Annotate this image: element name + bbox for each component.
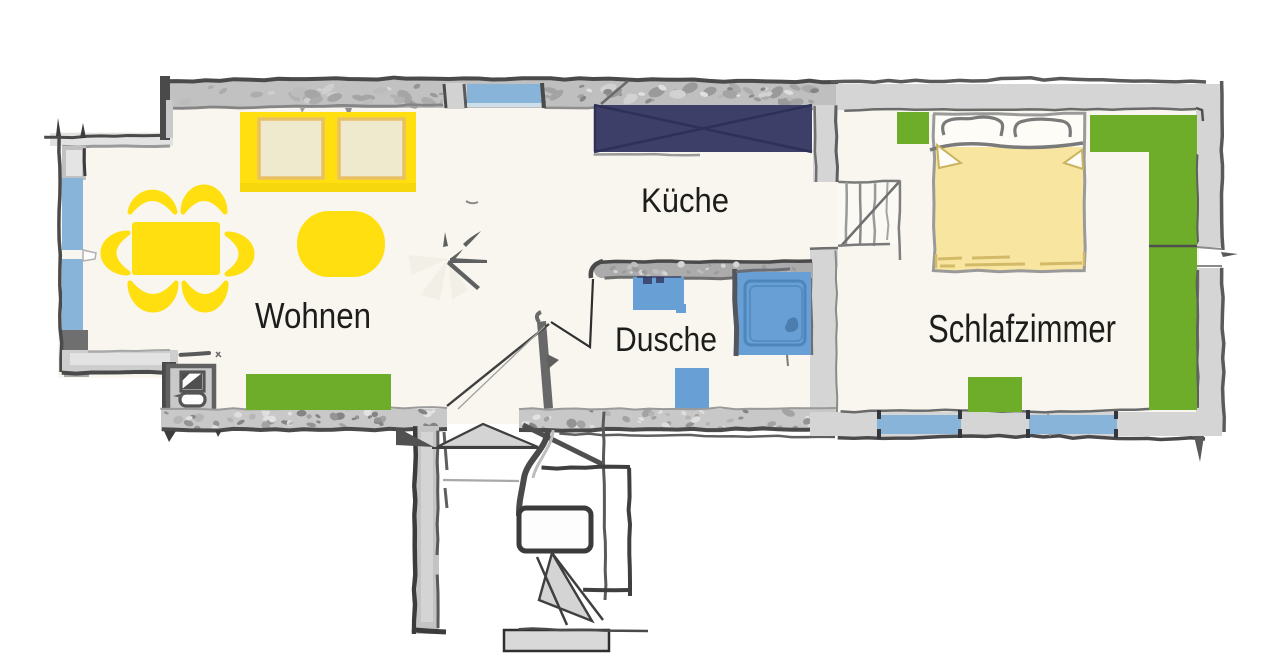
svg-text:Dusche: Dusche [615,321,717,359]
svg-text:Schlafzimmer: Schlafzimmer [928,308,1116,351]
svg-text:Wohnen: Wohnen [255,295,371,336]
svg-text:Küche: Küche [641,182,729,220]
